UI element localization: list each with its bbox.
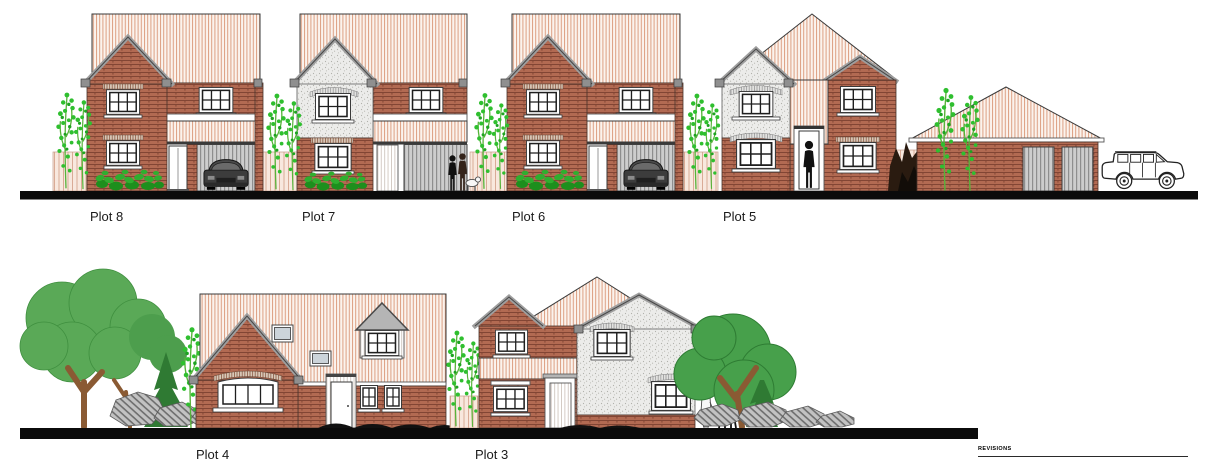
plot-8-house (81, 14, 263, 191)
detached-garage (909, 87, 1104, 191)
plot-6-house (501, 14, 683, 191)
street-elevations-drawing: Plot 8 Plot 7 Plot 6 Plot 5 (0, 0, 1220, 470)
garage-hipped-roof (909, 87, 1104, 140)
plot-8-label: Plot 8 (90, 209, 123, 224)
ground-line-bottom (20, 428, 978, 439)
revisions-block: REVISIONS (978, 446, 1188, 457)
suv-car (1102, 152, 1184, 189)
gable-upper-window (106, 90, 139, 115)
brick-arch (836, 137, 880, 142)
plot-4-label: Plot 4 (196, 447, 229, 462)
eaves-corbel (254, 79, 262, 87)
top-elevation-row: Plot 8 Plot 7 Plot 6 Plot 5 (20, 14, 1198, 224)
canopy-roof (166, 121, 260, 142)
eaves-corbel (81, 79, 90, 87)
plot-6-label: Plot 6 (512, 209, 545, 224)
upper-window (495, 330, 527, 354)
lower-window (840, 143, 876, 170)
brick-arch (103, 84, 143, 89)
tower-lower-window (737, 140, 776, 169)
brick-plinth (577, 415, 695, 428)
fascia (909, 138, 1104, 142)
elevation-sheet: Plot 8 Plot 7 Plot 6 Plot 5 (0, 0, 1220, 470)
plot-4-house (189, 294, 460, 428)
front-door (377, 145, 398, 191)
plot-5-label: Plot 5 (723, 209, 756, 224)
brick-arch (103, 135, 143, 140)
plot-5-house (715, 14, 928, 191)
garage-door (1062, 147, 1093, 191)
first-floor-window (409, 87, 443, 112)
front-door (331, 382, 352, 428)
render-band (373, 114, 467, 121)
corner-pier (255, 83, 263, 191)
plot-3-house (475, 277, 701, 428)
lower-window (493, 386, 527, 411)
brick-arch (311, 138, 353, 143)
plot-3-label: Plot 3 (475, 447, 508, 462)
gable-lower-window (106, 141, 139, 166)
first-floor-window (199, 87, 233, 112)
upper-window (841, 87, 876, 113)
bottom-elevation-row: Plot 4 Plot 3 (20, 269, 978, 462)
gable-lower-window (315, 144, 351, 171)
porch (543, 374, 577, 428)
tower-upper-window (739, 91, 773, 116)
canopy-roof (373, 121, 467, 142)
eaves-corbel (162, 79, 171, 87)
upper-window (594, 330, 630, 357)
front-door (550, 383, 571, 428)
revisions-title: REVISIONS (978, 446, 1012, 452)
small-brick-gable (477, 298, 541, 326)
brick-pier (187, 145, 197, 192)
render-band (166, 114, 260, 121)
dormer-window (365, 330, 399, 355)
porch (326, 374, 356, 428)
eaves-corbel (459, 79, 467, 87)
ground-window (361, 386, 378, 409)
ground-window (385, 386, 402, 409)
ground-line-top (20, 191, 1198, 200)
fence-panel (450, 396, 478, 428)
garage-door (404, 145, 467, 192)
gable-upper-window (316, 94, 351, 120)
large-tree-group-right (674, 314, 854, 427)
plot-7-label: Plot 7 (302, 209, 335, 224)
plot-7-house (290, 14, 481, 191)
garage-door (1023, 147, 1054, 191)
